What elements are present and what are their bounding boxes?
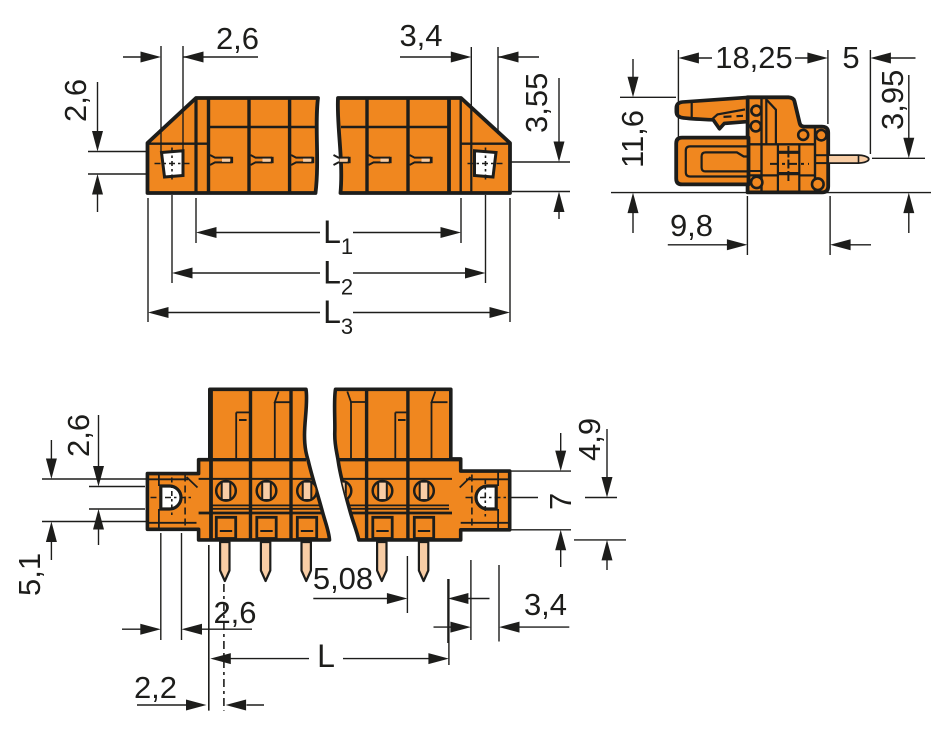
svg-text:L: L — [317, 638, 335, 674]
svg-text:3,55: 3,55 — [519, 73, 554, 133]
svg-text:11,6: 11,6 — [615, 110, 650, 168]
svg-text:L: L — [323, 214, 341, 250]
svg-text:2: 2 — [341, 275, 353, 300]
svg-text:5,08: 5,08 — [313, 561, 373, 596]
svg-text:9,8: 9,8 — [670, 208, 713, 243]
svg-text:2,6: 2,6 — [58, 79, 93, 122]
svg-text:L: L — [323, 255, 341, 291]
svg-text:3,4: 3,4 — [399, 18, 442, 53]
svg-text:18,25: 18,25 — [715, 40, 793, 75]
svg-text:4,9: 4,9 — [572, 418, 607, 461]
svg-text:3,4: 3,4 — [524, 587, 567, 622]
svg-text:2,6: 2,6 — [61, 414, 96, 457]
svg-text:3: 3 — [341, 314, 353, 339]
svg-text:3,95: 3,95 — [875, 70, 910, 130]
svg-text:2,6: 2,6 — [216, 21, 259, 56]
svg-text:1: 1 — [341, 234, 353, 259]
svg-text:L: L — [323, 294, 341, 330]
svg-text:5,1: 5,1 — [12, 553, 47, 596]
svg-text:7: 7 — [543, 493, 578, 510]
svg-text:2,2: 2,2 — [134, 670, 177, 705]
svg-text:5: 5 — [842, 40, 859, 75]
svg-text:2,6: 2,6 — [213, 595, 256, 630]
